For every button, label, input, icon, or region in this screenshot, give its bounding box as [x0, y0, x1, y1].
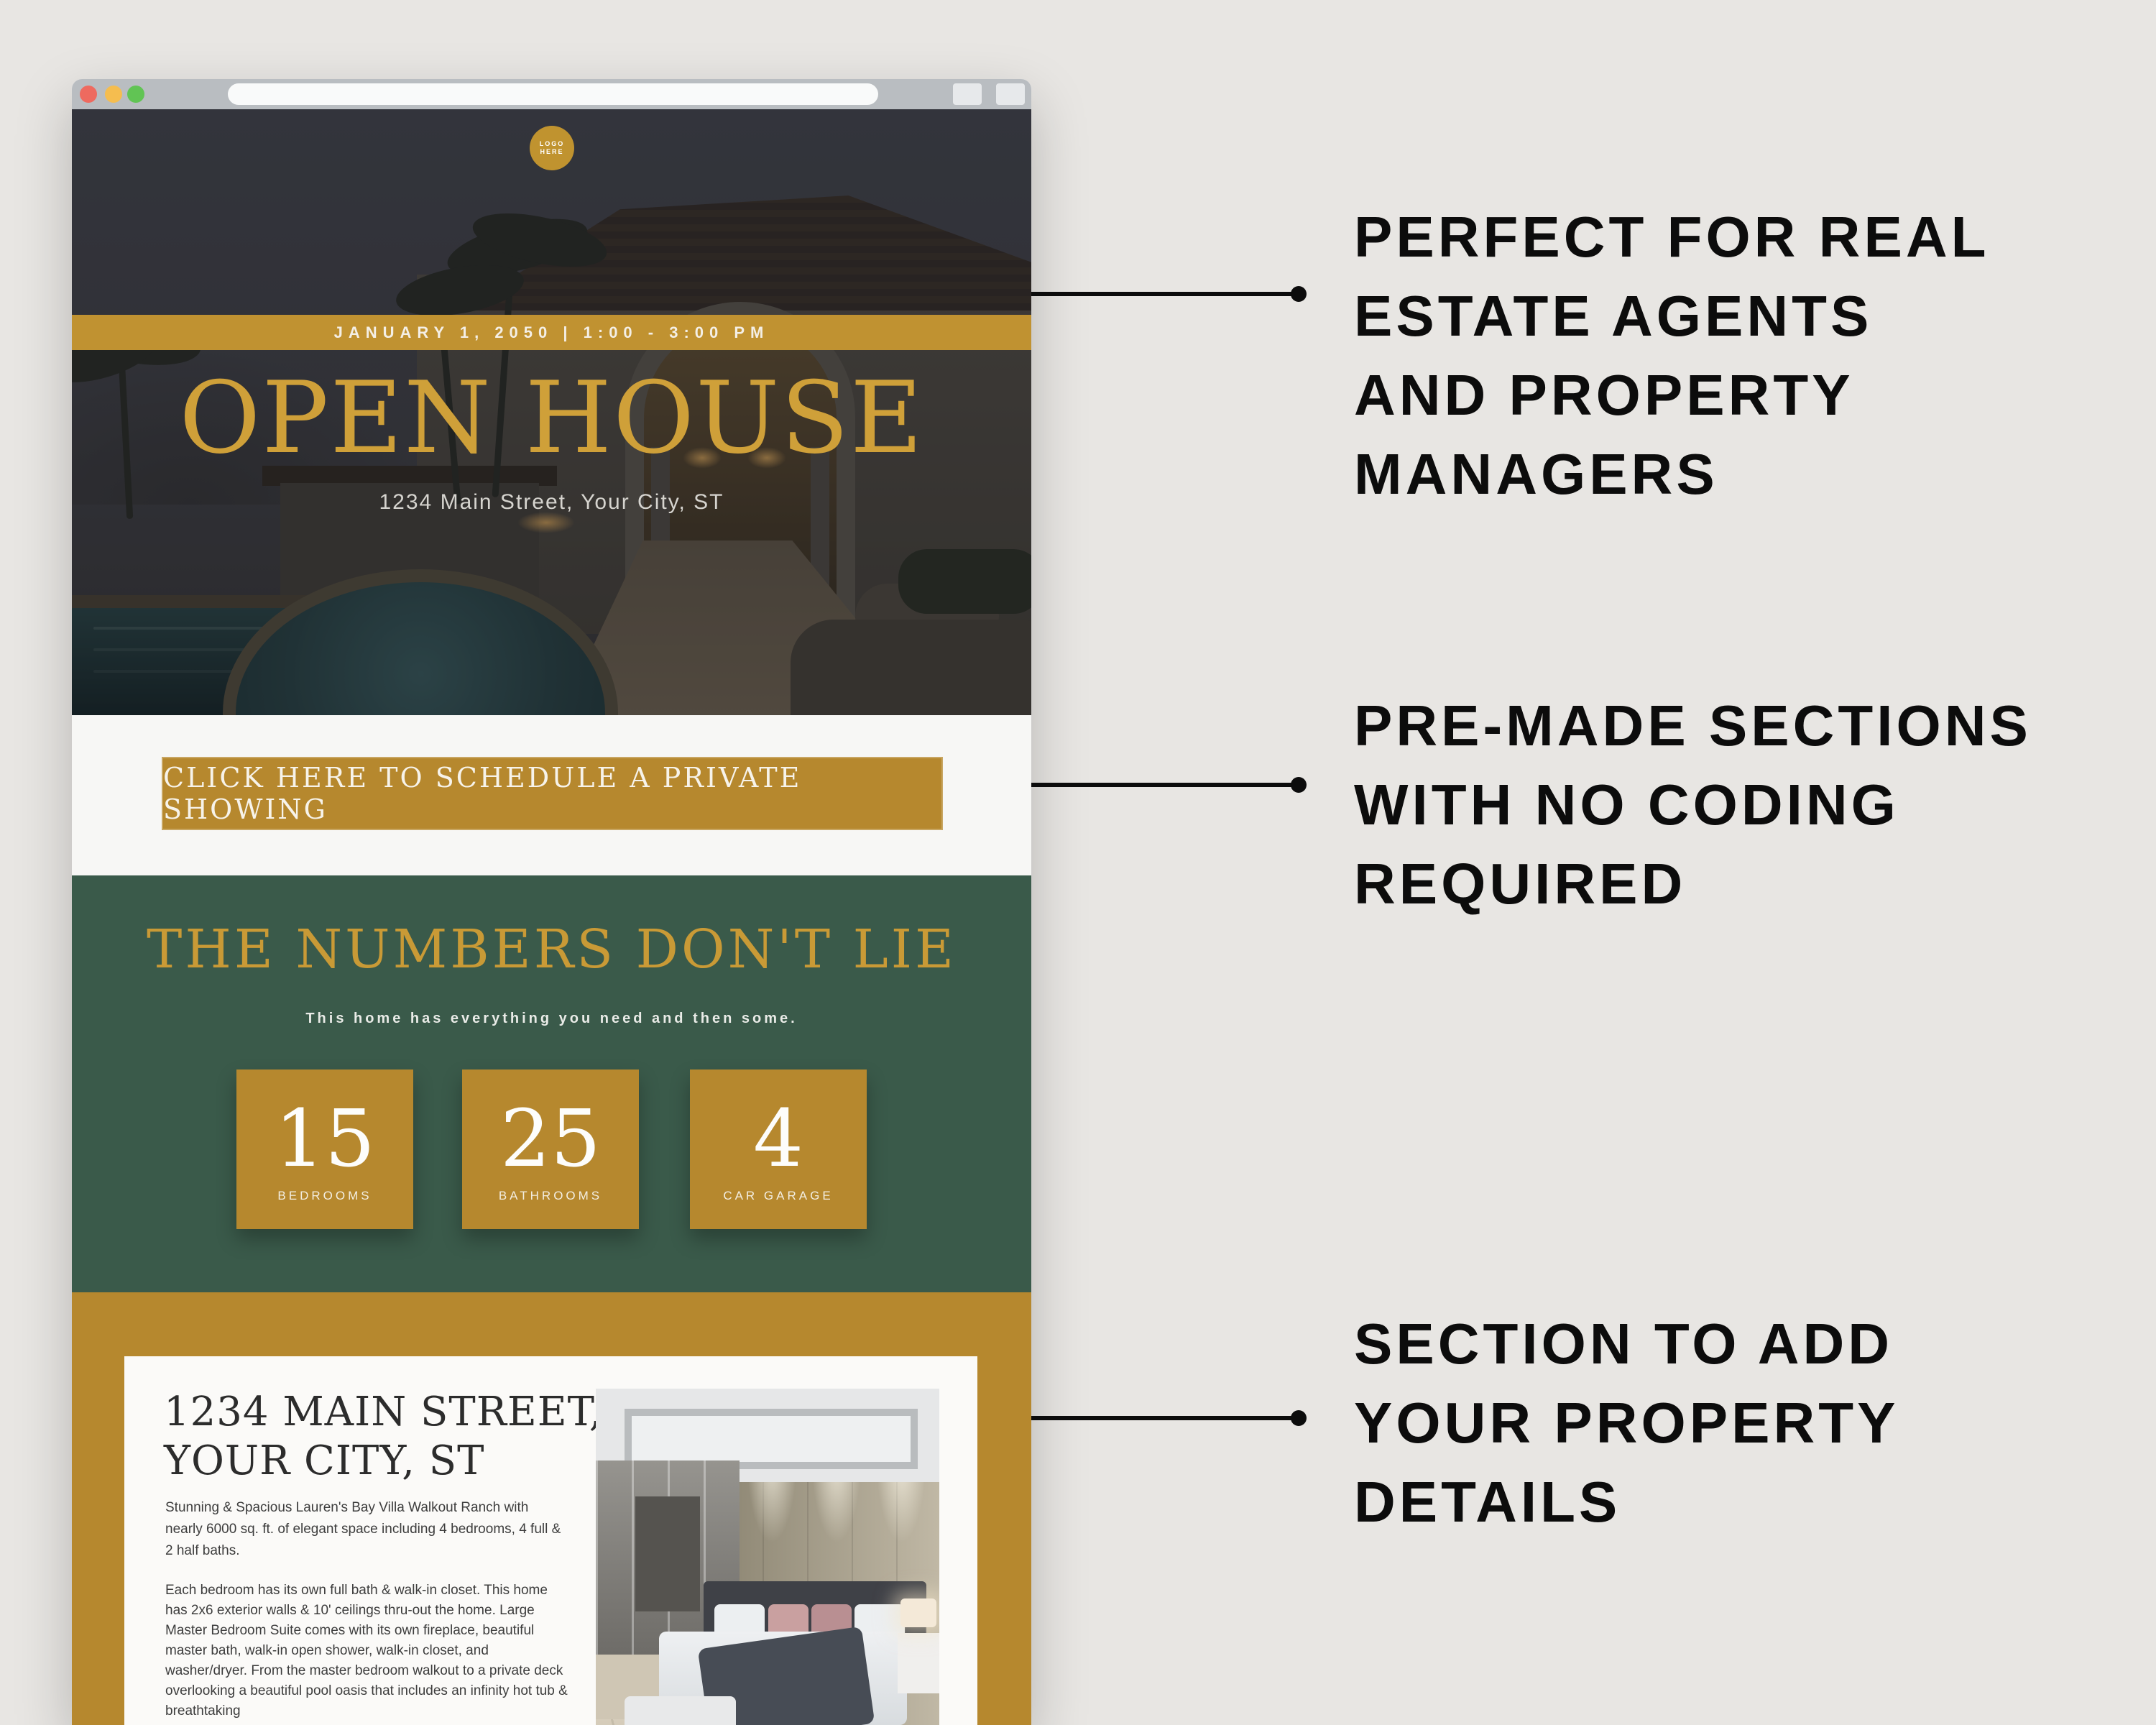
stat-label: CAR GARAGE	[723, 1189, 833, 1203]
callout-line	[1031, 783, 1299, 787]
browser-toolbar-button[interactable]	[996, 83, 1025, 105]
hero-title: OPEN HOUSE	[72, 368, 1031, 469]
hero-section: LOGO HERE JANUARY 1, 2050 | 1:00 - 3:00 …	[72, 109, 1031, 715]
callout-line	[1031, 292, 1299, 296]
bedroom-bench	[625, 1696, 736, 1725]
annotation-line: WITH NO CODING	[1354, 765, 2032, 845]
annotation-target-audience: PERFECT FOR REAL ESTATE AGENTS AND PROPE…	[1354, 198, 1989, 514]
property-address-line2: YOUR CITY, ST	[164, 1437, 603, 1486]
bedroom-photo	[596, 1389, 939, 1725]
minimize-window-icon[interactable]	[105, 86, 122, 103]
numbers-subtitle: This home has everything you need and th…	[72, 1011, 1031, 1027]
bedside-lamp	[900, 1598, 936, 1627]
annotation-property-details: SECTION TO ADD YOUR PROPERTY DETAILS	[1354, 1305, 1899, 1542]
stat-label: BEDROOMS	[277, 1189, 372, 1203]
stat-value: 15	[275, 1095, 375, 1182]
cta-section: CLICK HERE TO SCHEDULE A PRIVATE SHOWING	[72, 715, 1031, 875]
property-address-line1: 1234 MAIN STREET,	[164, 1388, 603, 1437]
event-date-banner: JANUARY 1, 2050 | 1:00 - 3:00 PM	[72, 315, 1031, 350]
close-window-icon[interactable]	[80, 86, 97, 103]
annotation-premade-sections: PRE-MADE SECTIONS WITH NO CODING REQUIRE…	[1354, 686, 2032, 924]
property-summary-paragraph: Stunning & Spacious Lauren's Bay Villa W…	[165, 1497, 569, 1562]
stat-label: BATHROOMS	[499, 1189, 602, 1203]
annotation-line: AND PROPERTY	[1354, 356, 1989, 435]
property-description-paragraph: Each bedroom has its own full bath & wal…	[165, 1581, 569, 1721]
numbers-section: THE NUMBERS DON'T LIE This home has ever…	[72, 875, 1031, 1292]
url-bar[interactable]	[228, 83, 878, 105]
browser-titlebar	[72, 79, 1031, 109]
maximize-window-icon[interactable]	[127, 86, 144, 103]
stat-value: 25	[500, 1095, 601, 1182]
stat-value: 4	[753, 1095, 803, 1182]
nightstand	[898, 1633, 939, 1693]
hero-address: 1234 Main Street, Your City, ST	[72, 490, 1031, 515]
schedule-showing-button[interactable]: CLICK HERE TO SCHEDULE A PRIVATE SHOWING	[162, 757, 943, 830]
annotation-line: DETAILS	[1354, 1463, 1899, 1542]
logo-badge: LOGO HERE	[530, 126, 574, 170]
annotation-line: MANAGERS	[1354, 435, 1989, 514]
callout-dot	[1291, 777, 1307, 793]
property-address-heading: 1234 MAIN STREET, YOUR CITY, ST	[164, 1388, 603, 1486]
annotation-line: PERFECT FOR REAL	[1354, 198, 1989, 277]
annotation-line: SECTION TO ADD	[1354, 1305, 1899, 1384]
callout-line	[1031, 1416, 1299, 1420]
callout-dot	[1291, 1410, 1307, 1426]
stat-card-bathrooms: 25 BATHROOMS	[462, 1069, 639, 1229]
logo-text-line1: LOGO	[540, 140, 565, 148]
property-card: 1234 MAIN STREET, YOUR CITY, ST Stunning…	[124, 1356, 977, 1725]
browser-toolbar-button[interactable]	[953, 83, 982, 105]
numbers-title: THE NUMBERS DON'T LIE	[72, 919, 1031, 980]
annotation-line: REQUIRED	[1354, 845, 2032, 924]
page-viewport: LOGO HERE JANUARY 1, 2050 | 1:00 - 3:00 …	[72, 109, 1031, 1725]
logo-text-line2: HERE	[540, 148, 563, 156]
callout-dot	[1291, 286, 1307, 302]
annotation-line: ESTATE AGENTS	[1354, 277, 1989, 356]
stat-card-bedrooms: 15 BEDROOMS	[236, 1069, 413, 1229]
annotation-line: PRE-MADE SECTIONS	[1354, 686, 2032, 765]
browser-window: LOGO HERE JANUARY 1, 2050 | 1:00 - 3:00 …	[72, 79, 1031, 1725]
wardrobe-reflection	[635, 1496, 700, 1611]
property-details-section: 1234 MAIN STREET, YOUR CITY, ST Stunning…	[72, 1292, 1031, 1725]
annotation-line: YOUR PROPERTY	[1354, 1384, 1899, 1463]
stat-card-garage: 4 CAR GARAGE	[690, 1069, 867, 1229]
